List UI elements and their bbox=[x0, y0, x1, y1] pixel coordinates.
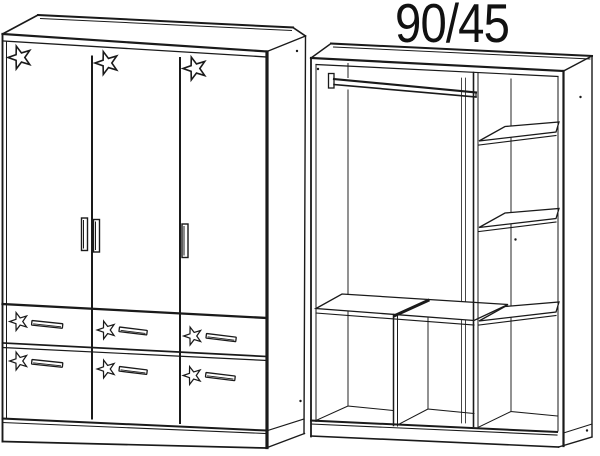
drawer-handle bbox=[32, 360, 63, 368]
ceiling-edge bbox=[316, 65, 558, 77]
wardrobe-interior-view bbox=[311, 44, 592, 448]
side-bottom-edge bbox=[266, 434, 305, 449]
fitting-dot bbox=[514, 238, 516, 240]
side-bottom-inner-edge bbox=[564, 424, 593, 433]
wardrobe-front-view bbox=[3, 15, 306, 448]
side-back-edge bbox=[304, 36, 306, 434]
shelf bbox=[479, 122, 559, 145]
fitting-dot bbox=[317, 68, 319, 70]
shelf bbox=[479, 209, 559, 232]
star-icon bbox=[95, 52, 117, 75]
cabinet-top-panel bbox=[3, 15, 306, 57]
drawer-top-line bbox=[3, 304, 268, 318]
fitting-dots bbox=[296, 50, 302, 402]
top-right-edge bbox=[267, 36, 306, 52]
fitting-dot bbox=[296, 50, 298, 52]
plinth-bottom-line bbox=[3, 442, 266, 449]
side-shelves bbox=[479, 122, 559, 325]
floor-front-edge bbox=[311, 421, 557, 433]
fitting-dot bbox=[299, 400, 301, 402]
wardrobe-diagram: 90/45 bbox=[0, 0, 600, 456]
vertical-partition bbox=[474, 73, 479, 428]
diagram-drawing bbox=[0, 0, 600, 456]
floor-back-edges bbox=[316, 406, 557, 427]
bottom-divider bbox=[394, 315, 398, 427]
drawer-handle bbox=[32, 321, 63, 329]
fitting-dot bbox=[579, 96, 581, 98]
door-handle bbox=[182, 224, 188, 258]
drawer-handle bbox=[205, 373, 235, 381]
star-icon bbox=[97, 321, 114, 339]
rail-bracket bbox=[329, 74, 335, 89]
star-icon bbox=[183, 57, 205, 80]
top-back-edge bbox=[38, 15, 293, 28]
door-handles bbox=[82, 218, 189, 258]
fitting-dot bbox=[586, 429, 588, 431]
star-decorations bbox=[8, 46, 205, 384]
interior-back-corners bbox=[348, 64, 511, 412]
hanging-rail bbox=[329, 74, 477, 98]
star-icon bbox=[184, 327, 201, 345]
drawer-handle bbox=[206, 334, 236, 342]
drawer-handle bbox=[119, 367, 147, 375]
side-plinth-top-edge bbox=[266, 419, 304, 431]
cabinet-frame bbox=[311, 44, 592, 448]
door-handle bbox=[82, 218, 88, 251]
top-front-edge bbox=[311, 58, 564, 71]
door-handle bbox=[94, 220, 100, 253]
dimension-label: 90/45 bbox=[395, 0, 509, 51]
cabinet-body-edges bbox=[3, 34, 306, 448]
star-icon bbox=[8, 46, 30, 69]
ghost-lines bbox=[462, 78, 466, 423]
plinth-bottom-line bbox=[311, 436, 559, 447]
star-icon bbox=[10, 313, 27, 331]
star-icon bbox=[10, 352, 27, 370]
star-icon bbox=[183, 367, 200, 385]
floor-lines bbox=[311, 406, 559, 447]
drawer-handle bbox=[119, 327, 147, 335]
star-icon bbox=[97, 360, 114, 378]
